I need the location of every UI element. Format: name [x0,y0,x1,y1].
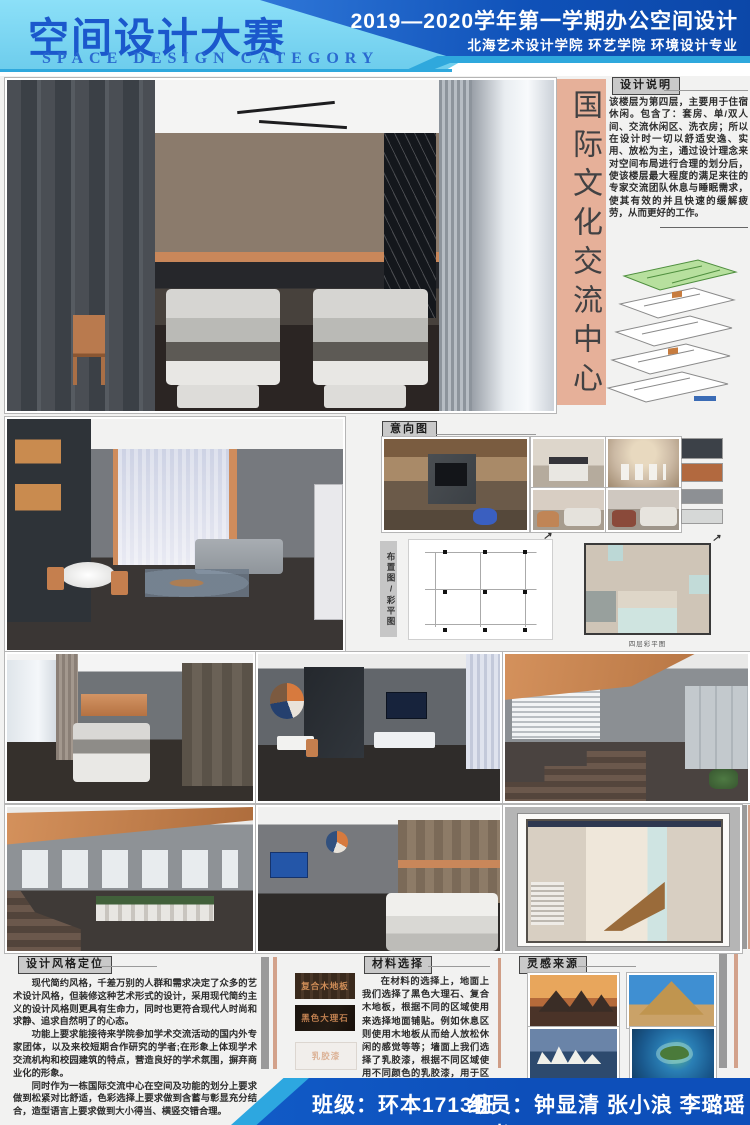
window [7,660,59,742]
bed [549,457,589,481]
inspiration-label: 灵感来源 [519,956,587,974]
bed-left [166,289,281,385]
header-underline [0,69,452,72]
bench-right [324,385,406,408]
plant [709,769,738,790]
mood-image-bedroom-3 [606,488,681,532]
pyramid [639,981,704,1015]
mood-image-loft [382,437,529,532]
palette-swatch-terracotta [681,463,723,482]
bed [640,507,677,526]
material-swatch-paint: 乳胶漆 [295,1042,357,1070]
wardrobe [182,663,253,786]
round-art-mirror [270,683,304,718]
inspiration-island-atoll [630,1027,716,1080]
window-row [22,850,238,887]
plan-3d-top-view [503,805,742,953]
label-underline [428,966,490,967]
pyramid [539,990,574,1011]
rug [145,569,249,597]
round-art-mirror [326,831,348,853]
orange-chair [537,511,558,527]
divider-bar-gray [261,957,269,1069]
tv-screen [435,463,466,487]
bed [564,508,601,526]
plan-caption: 四层彩平图 [584,638,711,648]
materials-label: 材料选择 [364,956,432,974]
label-underline [664,90,748,91]
palette-swatch-lightgray [681,509,723,524]
wood-headboard-wall [398,820,500,904]
marble-planter [96,896,214,920]
bench-left [177,385,259,408]
material-name: 复合木地板 [301,980,349,992]
plans-vertical-label: 布置图/彩平图 [380,541,397,637]
material-name: 黑色大理石 [301,1012,349,1024]
style-paragraph: 现代简约风格，千差万别的人群和需求决定了众多的艺术设计风格，但装修这种艺术形式的… [13,977,257,1028]
render-hall-wide [5,805,255,953]
vertical-project-title: 国际文化交流中心 [557,79,606,405]
lounge-area [618,591,677,633]
dining-set [621,464,666,480]
north-arrow-icon: ↗ [712,533,720,544]
design-notes-label: 设计说明 [612,77,680,95]
label-underline [578,966,636,967]
line-floor-plan [408,539,553,640]
exploded-axonometric-plan [602,256,748,408]
orange-canopy [81,694,147,716]
school-line: 北海艺术设计学院 环艺学院 环境设计专业 [467,34,738,54]
palette-swatch-dark [681,438,723,459]
design-competition-poster: 空间设计大赛 SPACE DESIGN CATEGORY 2019—2020学年… [0,0,750,1125]
render-bedroom-corridor [256,805,502,953]
render-single-bedroom [5,652,255,803]
bed [73,723,149,782]
mood-image-bedroom-1 [531,437,606,489]
materials-body: 在材料的选择上，地面上我们选择了黑色大理石、复合木地板，根据不同的区域使用来选择… [362,975,489,1094]
render-stair-hall [503,652,750,803]
divider-line-salmon [498,958,501,1068]
round-dining-table [61,562,115,587]
stairs [531,882,564,925]
pendant-light [237,101,335,114]
glass-partition [685,686,748,768]
divider-bar-salmon [273,957,277,1069]
style-paragraph: 功能上要求能接待来学院参加学术交流活动的国内外专家团体，以及来校短期合作研究的学… [13,1028,257,1079]
laundry-room [586,591,616,623]
bed-right [313,289,428,385]
white-sideboard [374,732,435,748]
material-name: 乳胶漆 [312,1050,341,1062]
red-sofa [612,510,636,527]
window [472,80,554,411]
inspiration-pyramids-sunset [528,973,619,1028]
pyramid [589,994,613,1011]
render-dining-tv-area [256,652,502,803]
poster-subtitle: SPACE DESIGN CATEGORY [42,50,379,68]
render-living-dining [5,417,345,652]
bathroom [689,575,709,594]
notes-end-line [660,227,748,228]
mood-image-dining [606,437,681,489]
dining-chair [47,567,64,590]
palette-swatch-gray [681,489,723,504]
edge-bar-gray [742,805,747,949]
shelving-wall [7,419,91,622]
edge-bar-salmon [734,954,738,1068]
team-members: 组员：钟显清 张小浪 李璐瑶 石书 [468,1089,750,1125]
bed [386,893,497,951]
inspiration-great-pyramid [627,973,716,1028]
color-floor-plan [584,543,711,635]
opera-house-shells [537,1042,601,1064]
tv-screen [270,852,308,878]
header-cyan-strip [438,56,750,63]
inspiration-opera-house [528,1027,619,1081]
blue-cushion [473,508,497,524]
marble-steps [505,751,646,801]
footer-band: 班级：环本1713班 组员：钟显清 张小浪 李璐瑶 石书 [0,1078,750,1125]
edge-bar-gray [719,954,727,1068]
label-underline [97,966,157,967]
sheer-curtain [466,654,500,769]
island [660,1046,690,1061]
header-band: 空间设计大赛 SPACE DESIGN CATEGORY 2019—2020学年… [0,0,750,76]
course-title: 2019—2020学年第一学期办公空间设计 [351,5,738,35]
wet-room [608,545,623,561]
material-swatch-marble: 黑色大理石 [295,1005,355,1031]
dining-chair [111,571,128,594]
wooden-chair [73,315,106,385]
column-grid-dots [443,550,447,554]
orange-chair [306,739,318,757]
render-twin-bedroom [5,78,556,413]
steps [7,891,81,951]
pendant-light [259,120,347,129]
mood-image-bedroom-2 [531,488,606,532]
label-underline [436,434,536,435]
material-swatch-wood: 复合木地板 [295,973,355,999]
design-notes-body: 该楼层为第四层，主要用于住宿休闲。包含了：套房、单/双人间、交流休闲区、洗衣房；… [609,97,748,220]
north-arrow-icon: ↗ [543,531,551,542]
white-door [314,484,343,620]
tv-screen [386,692,427,719]
